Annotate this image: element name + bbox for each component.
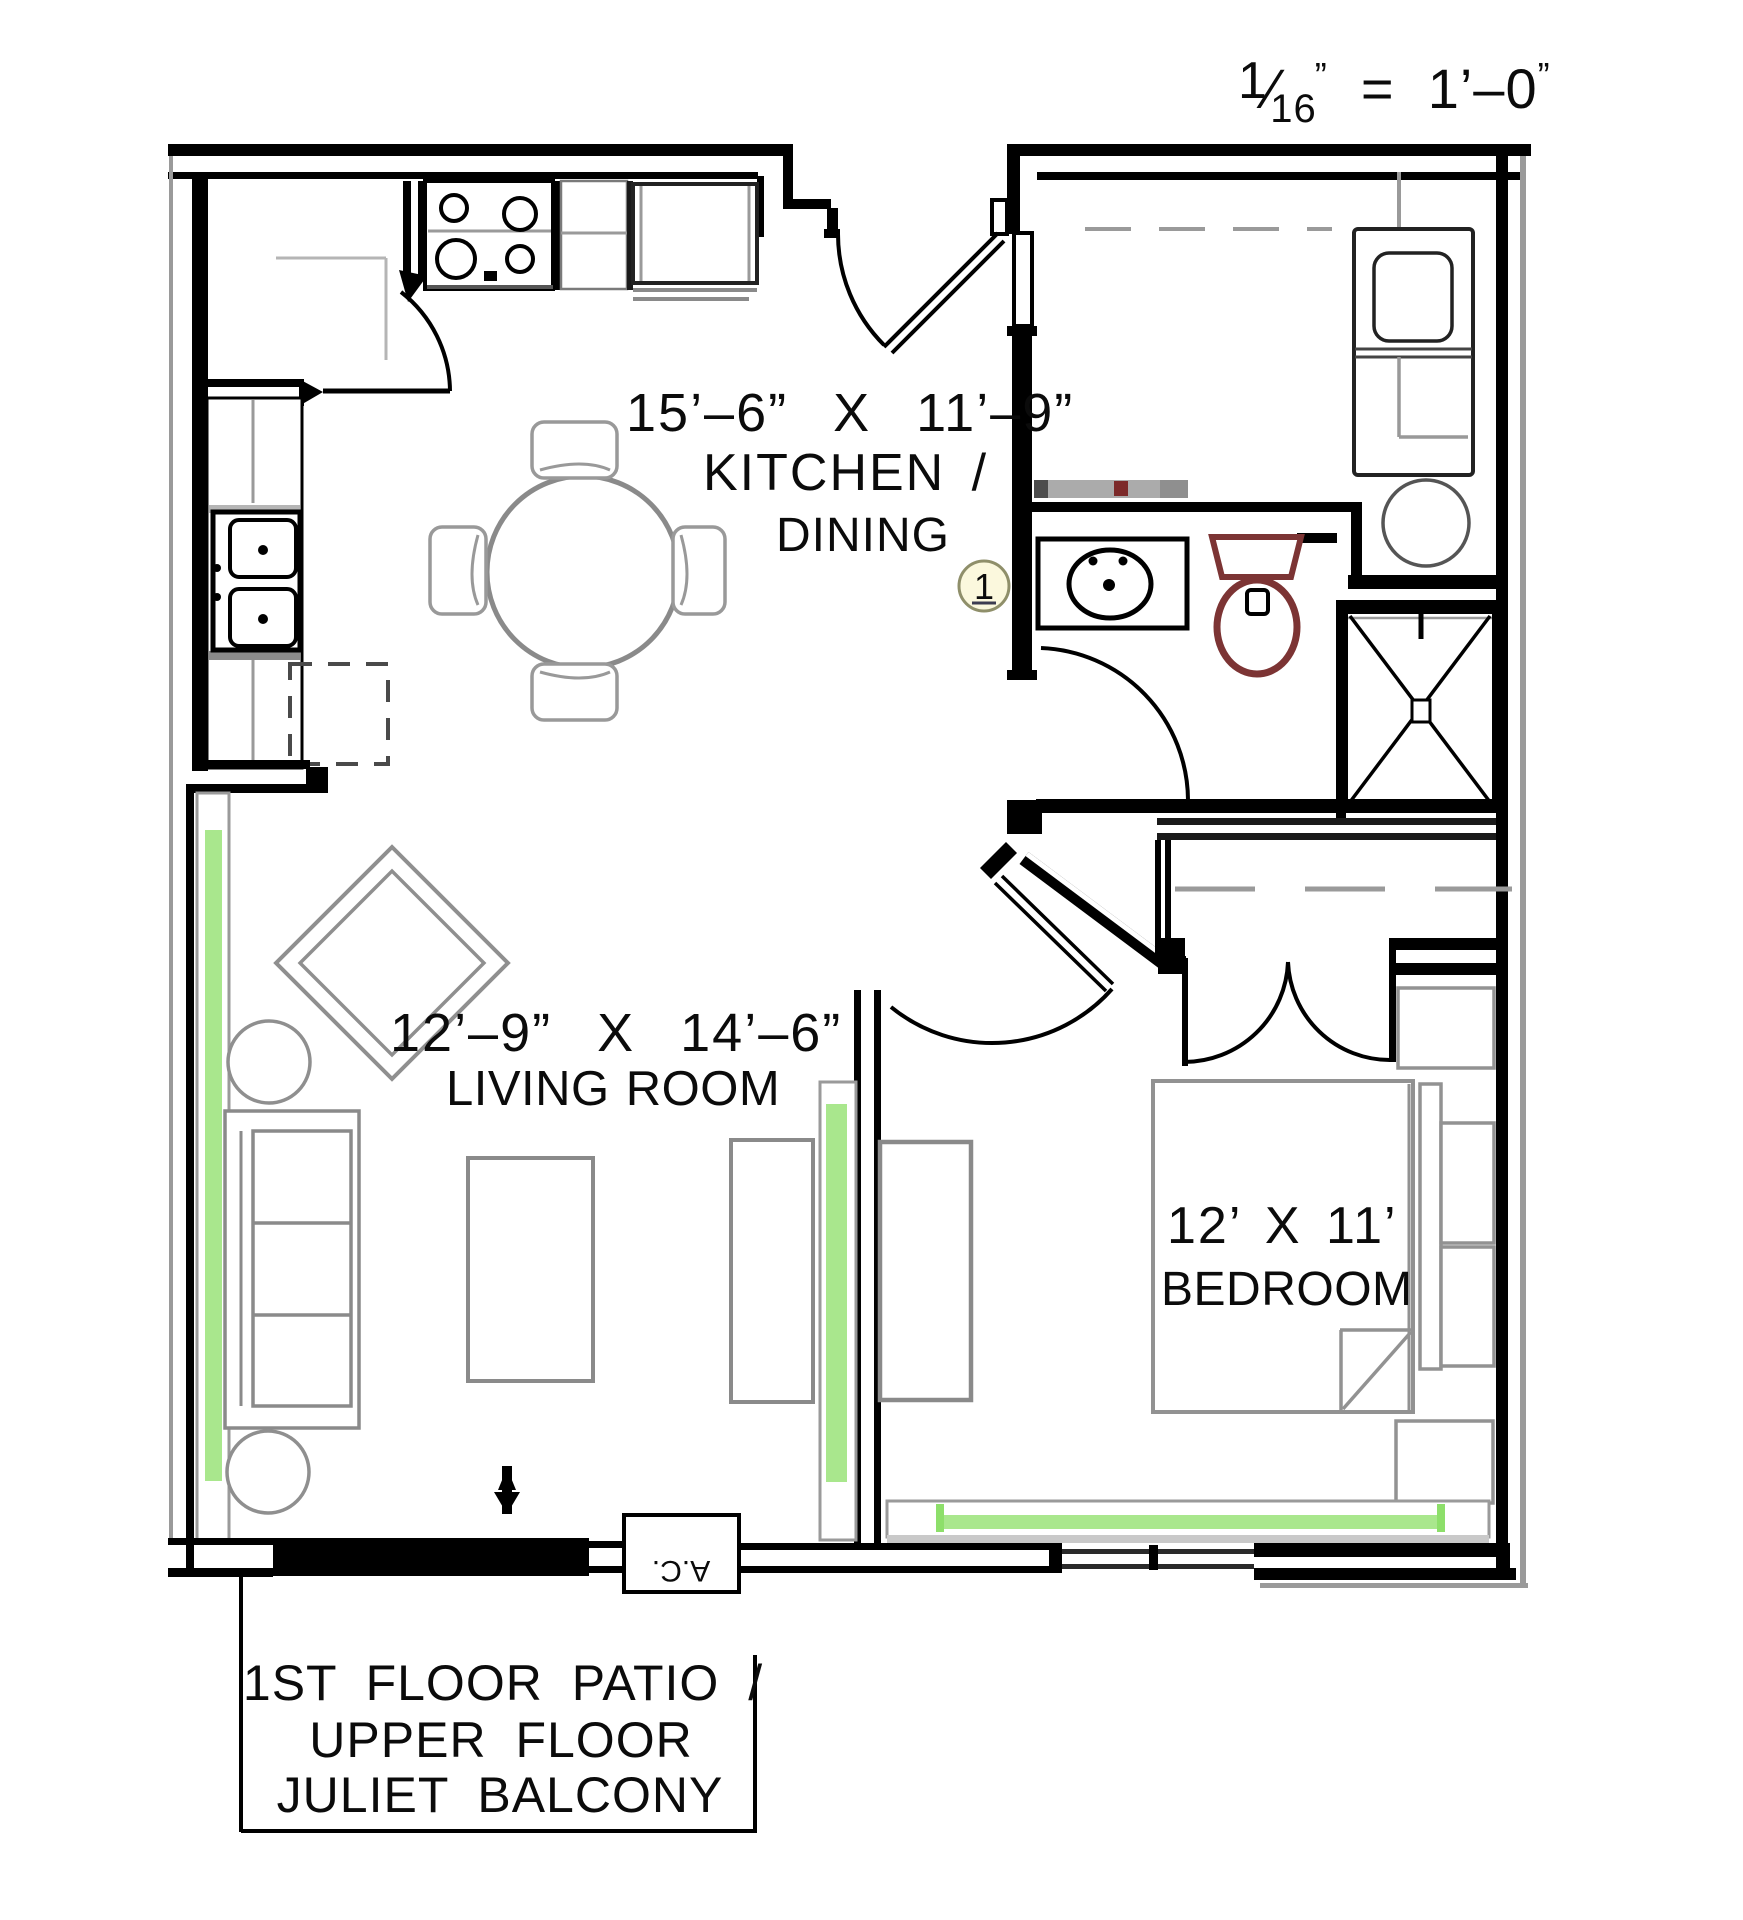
svg-text:DINING: DINING — [776, 509, 950, 562]
svg-text:15’–6” X 11’–9”: 15’–6” X 11’–9” — [626, 383, 1074, 443]
svg-text:BEDROOM: BEDROOM — [1161, 1263, 1413, 1316]
svg-text:LIVING ROOM: LIVING ROOM — [446, 1062, 780, 1116]
svg-text:UPPER FLOOR: UPPER FLOOR — [309, 1712, 692, 1768]
svg-text:A.C.: A.C. — [652, 1554, 710, 1587]
svg-text:12’ X 11’: 12’ X 11’ — [1167, 1197, 1398, 1255]
svg-text:JULIET BALCONY: JULIET BALCONY — [277, 1767, 724, 1823]
svg-text:1: 1 — [974, 566, 994, 607]
svg-text:KITCHEN /: KITCHEN / — [703, 444, 988, 502]
svg-text:1ST FLOOR PATIO /: 1ST FLOOR PATIO / — [243, 1655, 763, 1711]
svg-text:12’–9” X 14’–6”: 12’–9” X 14’–6” — [390, 1003, 842, 1063]
